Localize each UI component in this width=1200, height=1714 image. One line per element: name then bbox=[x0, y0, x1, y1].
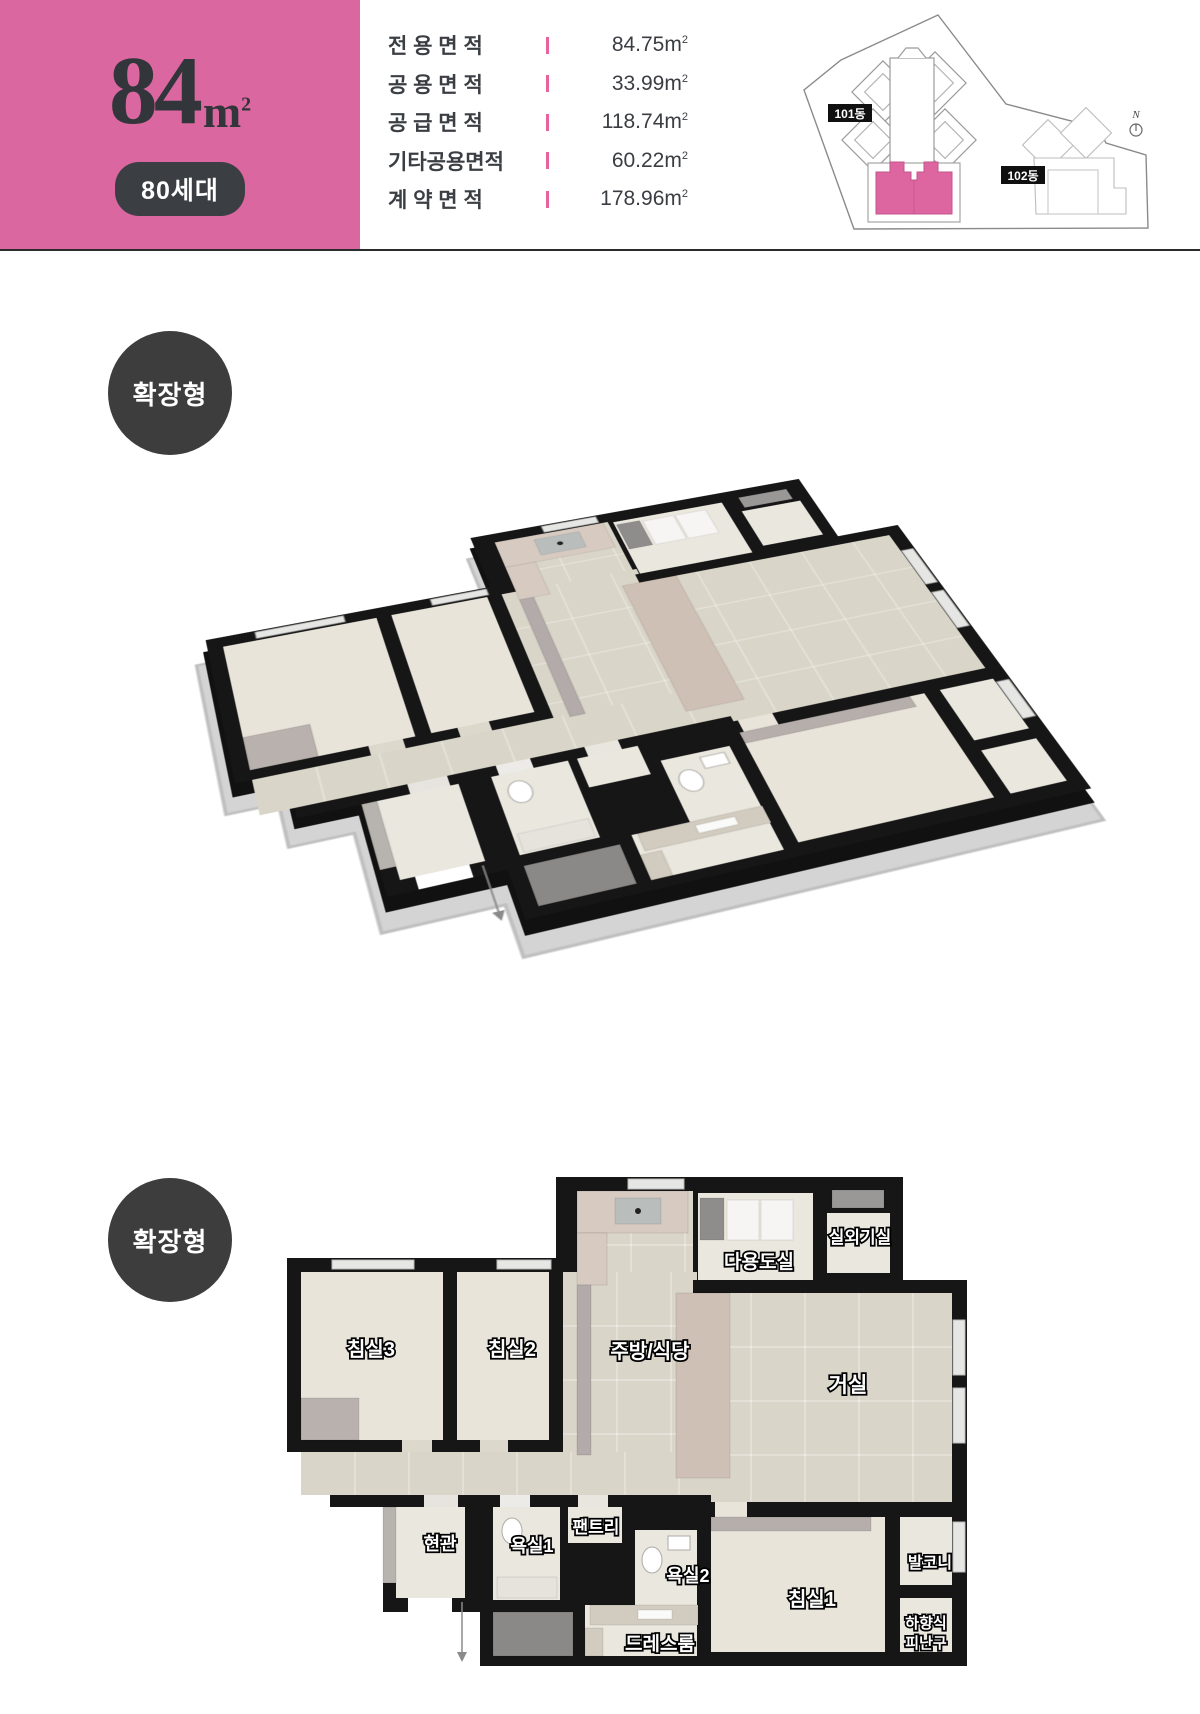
plan-3d-floor bbox=[177, 414, 1109, 998]
unit-title-unit: m2 bbox=[203, 83, 251, 141]
site-plan: 101동102동N bbox=[718, 0, 1200, 246]
unit-title-number: 84 bbox=[109, 42, 199, 140]
room-label-bath1: 욕실1 bbox=[510, 1536, 553, 1556]
divider-tick bbox=[546, 191, 549, 208]
room-label-entrance: 현관 bbox=[423, 1534, 457, 1554]
room-label-kitchen-dining: 주방/식당 bbox=[610, 1340, 690, 1363]
room-label-living: 거실 bbox=[829, 1374, 868, 1397]
building-102-label: 102동 bbox=[1001, 166, 1045, 184]
plan-3d-stack bbox=[177, 414, 1109, 998]
room-label-bedroom3: 침실3 bbox=[347, 1338, 395, 1361]
room-label-balcony: 발코니 bbox=[908, 1554, 952, 1572]
svg-text:N: N bbox=[1131, 109, 1140, 121]
area-row-label: 공 용 면 적 bbox=[388, 69, 546, 99]
plan-2d-view: 실외기실다용도실침실3침실2주방/식당거실현관욕실1팬트리욕실2침실1발코니드레… bbox=[283, 1070, 973, 1685]
area-row: 기타공용면적60.22m2 bbox=[388, 142, 688, 181]
divider-tick bbox=[546, 152, 549, 169]
svg-text:101동: 101동 bbox=[834, 107, 865, 121]
svg-text:102동: 102동 bbox=[1007, 169, 1038, 183]
area-row-label: 기타공용면적 bbox=[388, 146, 546, 176]
divider-tick bbox=[546, 75, 549, 92]
header-divider bbox=[0, 249, 1200, 251]
area-row-value: 84.75m2 bbox=[563, 33, 688, 57]
area-row-value: 33.99m2 bbox=[563, 72, 688, 96]
divider-tick bbox=[546, 37, 549, 54]
unit-title: 84 m2 bbox=[109, 42, 251, 140]
room-label-outdoor-unit: 실외기실 bbox=[829, 1228, 892, 1247]
area-table: 전 용 면 적84.75m2공 용 면 적33.99m2공 급 면 적118.7… bbox=[388, 26, 688, 219]
room-label-bedroom1: 침실1 bbox=[788, 1588, 836, 1611]
area-row-value: 178.96m2 bbox=[563, 187, 688, 211]
building-101-label: 101동 bbox=[828, 104, 872, 122]
area-row-value: 118.74m2 bbox=[563, 110, 688, 134]
area-row-label: 계 약 면 적 bbox=[388, 184, 546, 214]
area-row-label: 공 급 면 적 bbox=[388, 107, 546, 137]
room-label-dressroom: 드레스룸 bbox=[625, 1633, 695, 1655]
building-102-outline bbox=[1023, 108, 1126, 214]
area-row: 전 용 면 적84.75m2 bbox=[388, 26, 688, 65]
room-label-utility: 다용도실 bbox=[724, 1251, 794, 1273]
household-count-badge: 80세대 bbox=[115, 162, 245, 216]
area-row: 계 약 면 적178.96m2 bbox=[388, 180, 688, 219]
area-row: 공 급 면 적118.74m2 bbox=[388, 103, 688, 142]
room-label-pantry: 팬트리 bbox=[573, 1518, 620, 1537]
plan-2d-badge: 확장형 bbox=[108, 1178, 232, 1302]
compass-icon: N bbox=[1130, 109, 1142, 136]
plan-3d-view bbox=[150, 268, 1050, 1038]
divider-tick bbox=[546, 114, 549, 131]
area-row: 공 용 면 적33.99m2 bbox=[388, 65, 688, 104]
unit-banner: 84 m2 80세대 bbox=[0, 0, 360, 250]
room-label-bedroom2: 침실2 bbox=[488, 1338, 536, 1361]
area-row-label: 전 용 면 적 bbox=[388, 30, 546, 60]
area-row-value: 60.22m2 bbox=[563, 149, 688, 173]
room-label-bath2: 욕실2 bbox=[666, 1566, 709, 1586]
